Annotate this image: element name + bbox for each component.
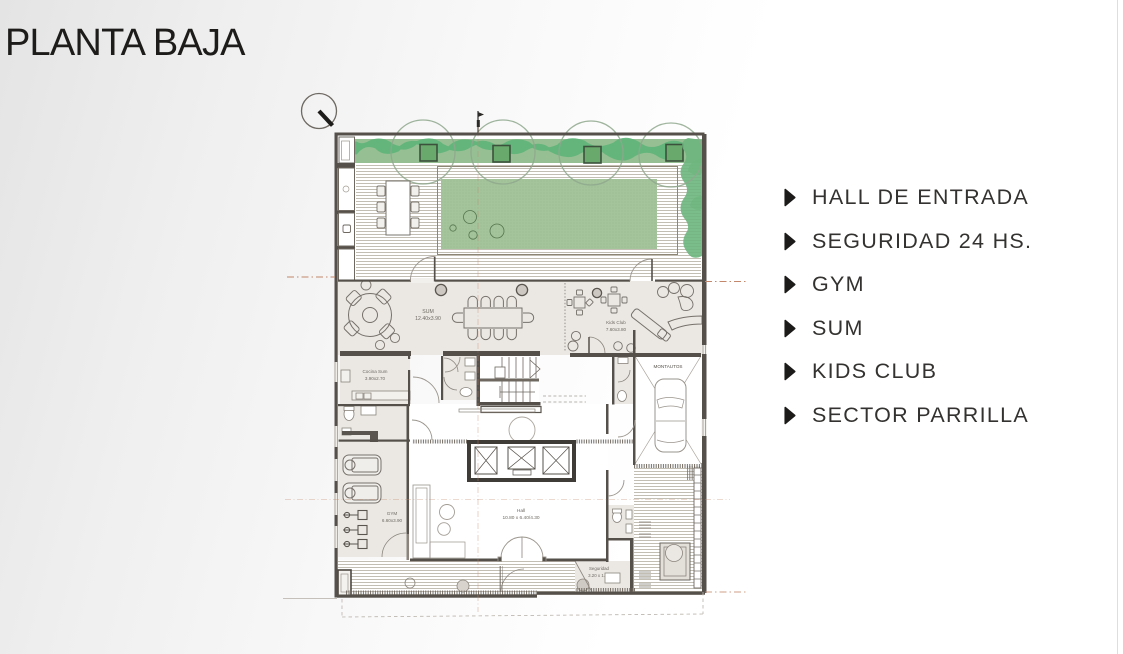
svg-text:SUM: SUM [422, 309, 434, 315]
svg-text:3.90x2.70: 3.90x2.70 [365, 376, 386, 381]
svg-text:7.60x3.80: 7.60x3.80 [606, 327, 627, 332]
svg-text:Kids Club: Kids Club [606, 320, 626, 325]
svg-text:GYM: GYM [387, 511, 398, 516]
svg-text:Seguridad: Seguridad [589, 566, 610, 571]
svg-text:Cocina Sum: Cocina Sum [362, 369, 387, 374]
svg-text:Hall: Hall [517, 508, 525, 514]
svg-text:6.60x3.90: 6.60x3.90 [382, 518, 403, 523]
svg-text:12.40x3.90: 12.40x3.90 [415, 316, 441, 322]
svg-text:10.80 x 6.40/4.30: 10.80 x 6.40/4.30 [502, 515, 539, 521]
svg-text:MONTAUTOS: MONTAUTOS [654, 364, 683, 369]
